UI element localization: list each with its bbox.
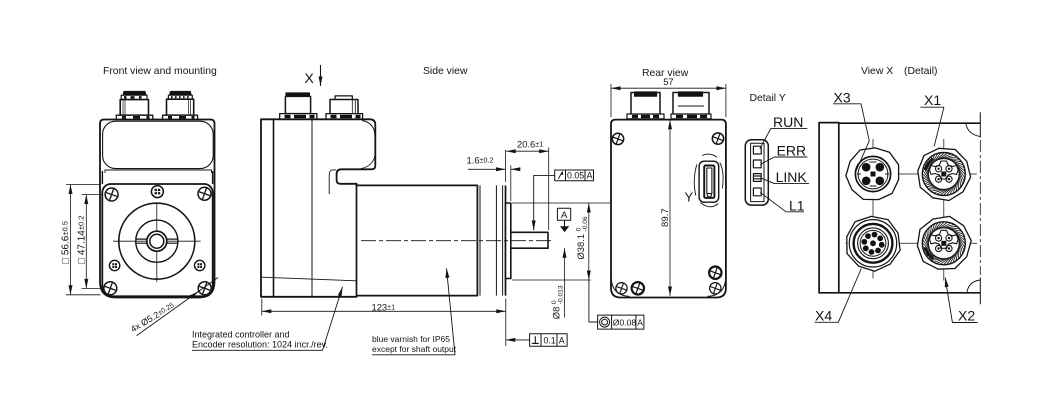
svg-text:123±1: 123±1 [372, 302, 396, 313]
svg-text:ERR: ERR [777, 143, 807, 159]
svg-text:LINK: LINK [776, 169, 808, 185]
svg-text:Side view: Side view [423, 66, 468, 77]
svg-text:Integrated controller and: Integrated controller and [192, 329, 290, 339]
svg-text:Encoder resolution: 1024 incr.: Encoder resolution: 1024 incr./rev. [192, 340, 328, 350]
svg-text:A: A [559, 335, 565, 345]
svg-text:A: A [637, 317, 643, 327]
svg-text:20.6±1: 20.6±1 [517, 138, 543, 149]
svg-text:4x Ø5.2±0.25: 4x Ø5.2±0.25 [129, 300, 176, 334]
svg-text:RUN: RUN [773, 114, 803, 130]
svg-text:0.05: 0.05 [567, 171, 584, 181]
svg-text:57: 57 [663, 76, 673, 87]
svg-text:X2: X2 [958, 307, 975, 323]
svg-text:□ 56.6±0.5: □ 56.6±0.5 [61, 221, 72, 264]
svg-text:X4: X4 [815, 308, 832, 324]
svg-text:1.6±0.2: 1.6±0.2 [467, 154, 494, 165]
svg-text:□ 47.14±0.2: □ 47.14±0.2 [77, 215, 88, 264]
svg-text:Ø8 0-0.013: Ø8 0-0.013 [551, 285, 565, 319]
svg-text:Ø0.08: Ø0.08 [613, 317, 637, 327]
svg-text:Detail Y: Detail Y [750, 93, 786, 104]
svg-text:Front view and mounting: Front view and mounting [103, 66, 217, 77]
svg-text:blue varnish for IP65: blue varnish for IP65 [372, 334, 450, 344]
svg-text:View X(Detail): View X(Detail) [861, 66, 938, 77]
svg-text:X3: X3 [834, 90, 851, 106]
svg-text:Ø38.1 0-0.06: Ø38.1 0-0.06 [575, 216, 589, 259]
svg-text:X: X [305, 70, 315, 86]
svg-text:A: A [561, 210, 568, 221]
svg-text:Y: Y [685, 189, 694, 204]
svg-text:X1: X1 [924, 92, 941, 108]
svg-text:0.1: 0.1 [544, 335, 556, 345]
svg-text:except for shaft output: except for shaft output [372, 344, 457, 354]
svg-text:89.7: 89.7 [660, 208, 671, 227]
svg-text:L1: L1 [789, 197, 805, 213]
svg-text:A: A [587, 171, 593, 181]
